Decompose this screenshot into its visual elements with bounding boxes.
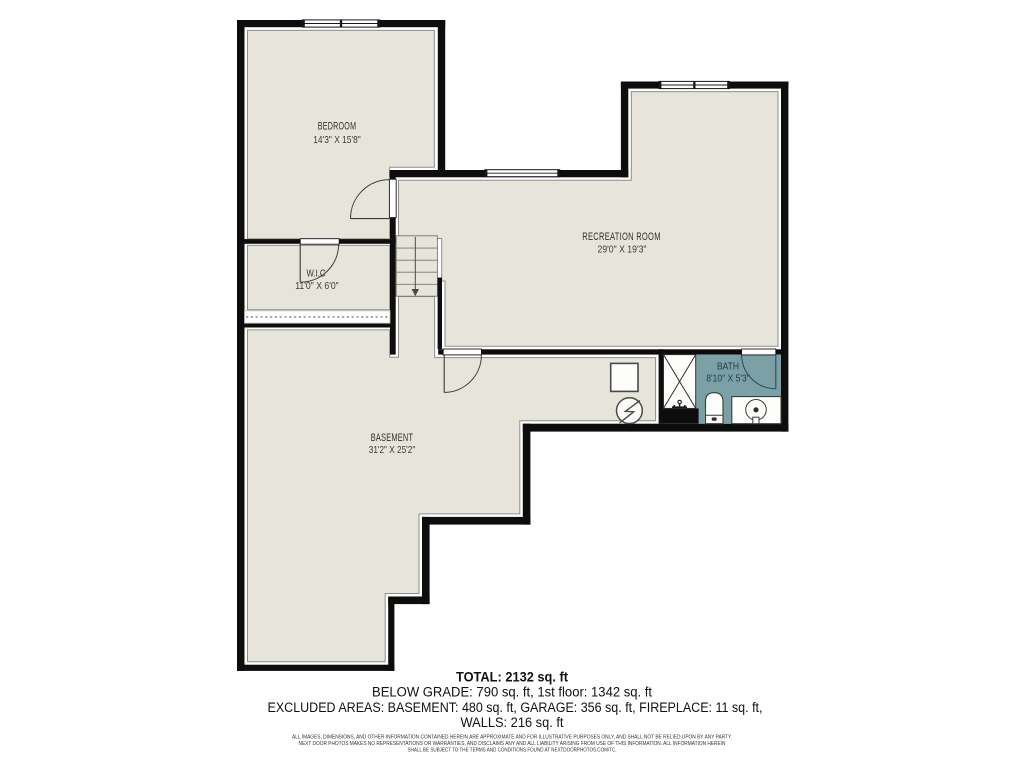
svg-text:BATH: BATH [717,360,739,372]
svg-text:31'2" X 25'2": 31'2" X 25'2" [369,444,416,456]
svg-text:BEDROOM: BEDROOM [318,121,357,133]
svg-text:WALLS: 216 sq. ft: WALLS: 216 sq. ft [461,715,564,730]
svg-text:11'0" X 6'0": 11'0" X 6'0" [295,280,339,292]
svg-text:TOTAL: 2132 sq. ft: TOTAL: 2132 sq. ft [456,670,569,685]
svg-text:ALL IMAGES, DIMENSIONS, AND OT: ALL IMAGES, DIMENSIONS, AND OTHER INFORM… [292,735,732,741]
svg-text:29'0" X 19'3": 29'0" X 19'3" [598,244,647,256]
svg-text:SHALL BE SUBJECT TO THE TERMS: SHALL BE SUBJECT TO THE TERMS AND CONDIT… [408,748,617,754]
svg-text:BASEMENT: BASEMENT [371,432,414,444]
svg-text:BELOW GRADE: 790 sq. ft, 1st f: BELOW GRADE: 790 sq. ft, 1st floor: 1342… [372,685,652,700]
svg-text:EXCLUDED AREAS: BASEMENT: 480: EXCLUDED AREAS: BASEMENT: 480 sq. ft, GA… [268,700,763,715]
svg-text:8'10" X 5'3": 8'10" X 5'3" [706,374,750,385]
svg-text:RECREATION ROOM: RECREATION ROOM [582,231,661,243]
svg-text:NEXT DOOR PHOTOS MAKES NO REPR: NEXT DOOR PHOTOS MAKES NO REPRESENTATION… [299,741,726,747]
svg-text:14'3" X 15'8": 14'3" X 15'8" [313,134,361,146]
svg-text:W.I.C: W.I.C [307,268,326,280]
